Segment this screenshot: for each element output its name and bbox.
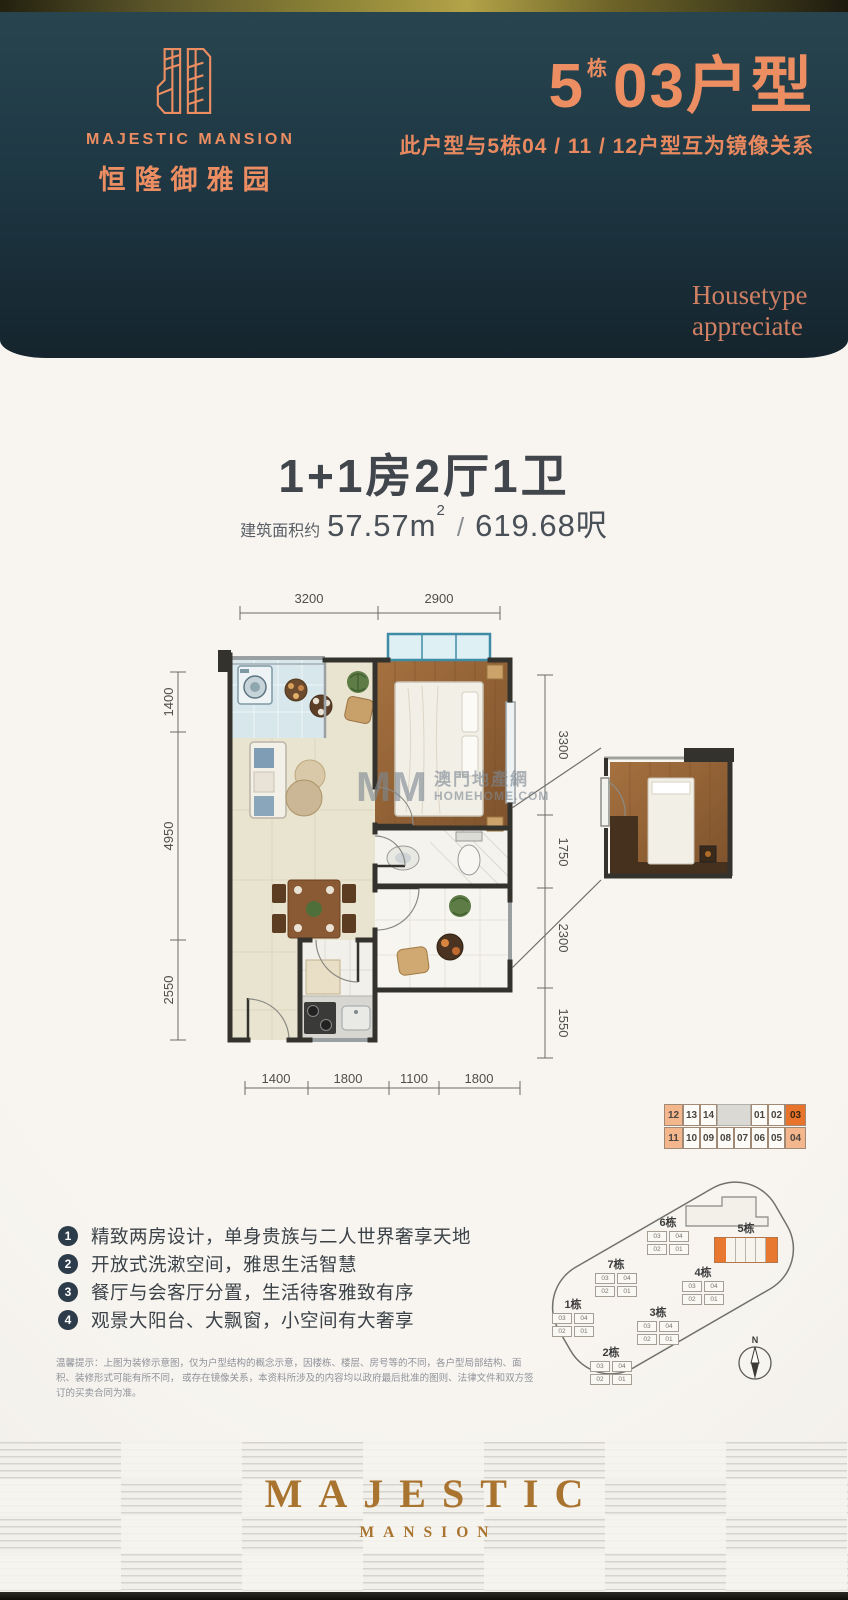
dim-label: 1800 bbox=[465, 1071, 494, 1086]
unit-cell-05: 05 bbox=[768, 1127, 785, 1149]
dim-label: 1400 bbox=[161, 688, 176, 717]
feature-text: 餐厅与会客厅分置，生活待客雅致有序 bbox=[91, 1279, 414, 1305]
building-cell: 02 bbox=[590, 1374, 610, 1385]
feature-number-badge: 3 bbox=[58, 1282, 78, 1302]
building-5-wing bbox=[715, 1238, 726, 1262]
unit-cell-08: 08 bbox=[717, 1127, 734, 1149]
feature-item: 3 餐厅与会客厅分置，生活待客雅致有序 bbox=[58, 1282, 538, 1302]
pouf-large bbox=[286, 780, 322, 816]
siteplan-building-1: 1栋 03 04 02 01 bbox=[550, 1296, 596, 1337]
building-cell: 02 bbox=[647, 1244, 667, 1255]
siteplan-building-7: 7栋 03 04 02 01 bbox=[593, 1256, 639, 1297]
building-cell: 03 bbox=[595, 1273, 615, 1284]
building-cell: 04 bbox=[659, 1321, 679, 1332]
feature-item: 2 开放式洗漱空间，雅思生活智慧 bbox=[58, 1254, 538, 1274]
dim-top: 3200 2900 bbox=[240, 591, 500, 620]
unit-cell-01: 01 bbox=[751, 1104, 768, 1126]
feature-number-badge: 1 bbox=[58, 1226, 78, 1246]
dim-label: 1800 bbox=[334, 1071, 363, 1086]
dim-label: 2300 bbox=[556, 924, 571, 953]
sofa bbox=[250, 742, 286, 818]
feature-item: 1 精致两房设计，单身贵族与二人世界奢享天地 bbox=[58, 1226, 538, 1246]
tagline-line2: appreciate bbox=[692, 311, 807, 342]
photo-edge-top bbox=[0, 0, 848, 12]
siteplan: N 6栋 03 04 02 01 5栋 7栋 03 04 02 01 bbox=[518, 1158, 848, 1408]
area-value-m2: 57.57m2 bbox=[327, 508, 446, 544]
building-cell: 02 bbox=[552, 1326, 572, 1337]
building-cell: 03 bbox=[590, 1361, 610, 1372]
feature-number-badge: 2 bbox=[58, 1254, 78, 1274]
dim-label: 1100 bbox=[400, 1071, 428, 1086]
feature-text: 精致两房设计，单身贵族与二人世界奢享天地 bbox=[91, 1223, 471, 1249]
siteplan-building-4: 4栋 03 04 02 01 bbox=[680, 1264, 726, 1305]
unit-cell-02: 02 bbox=[768, 1104, 785, 1126]
building-cell: 03 bbox=[637, 1321, 657, 1332]
tagline-line1: Housetype bbox=[692, 280, 807, 311]
balcony-table bbox=[285, 679, 307, 701]
dining-chair bbox=[272, 884, 286, 903]
footer-brand-sub: MANSION bbox=[0, 1524, 848, 1542]
feature-text: 开放式洗漱空间，雅思生活智慧 bbox=[91, 1251, 357, 1277]
building-cell: 04 bbox=[574, 1313, 594, 1324]
compass-label: N bbox=[752, 1335, 759, 1345]
feature-text: 观景大阳台、大飘窗，小空间有大奢享 bbox=[91, 1307, 414, 1333]
unit-cell-13: 13 bbox=[683, 1104, 700, 1126]
unit-title: 5栋03户型 bbox=[399, 56, 814, 118]
dining-chair bbox=[342, 914, 356, 933]
building-5-wing bbox=[766, 1238, 777, 1262]
bay-window-top bbox=[388, 634, 490, 660]
bay-window-right bbox=[506, 702, 515, 803]
dim-left: 1400 4950 2550 bbox=[161, 672, 186, 1040]
floor-strip-bottom-row: 11 10 09 08 07 06 05 04 bbox=[664, 1127, 808, 1149]
unit-cell-10: 10 bbox=[683, 1127, 700, 1149]
terrace-table bbox=[437, 934, 463, 960]
logo-monogram-icon bbox=[153, 44, 215, 118]
building-cell: 03 bbox=[682, 1281, 702, 1292]
floor-strip-top-row: 12 13 14 01 02 03 bbox=[664, 1104, 808, 1126]
unit-block-number: 5 bbox=[549, 52, 585, 121]
dim-label: 1550 bbox=[556, 1009, 571, 1038]
plant-icon bbox=[347, 671, 369, 693]
dim-label: 2550 bbox=[161, 976, 176, 1005]
brochure-photo: MAJESTIC MANSION 恒隆御雅园 5栋03户型 此户型与5栋04 /… bbox=[0, 0, 848, 1600]
siteplan-building-2: 2栋 03 04 02 01 bbox=[588, 1344, 634, 1385]
unit-cell-11: 11 bbox=[664, 1127, 683, 1149]
tagline: Housetype appreciate bbox=[692, 280, 807, 343]
disclaimer: 温馨提示：上图为装修示意图，仅为户型结构的概念示意，因楼栋、楼层、房号等的不同，… bbox=[56, 1356, 536, 1402]
floor-locator-strip: 12 13 14 01 02 03 11 10 09 08 07 06 05 0… bbox=[664, 1104, 808, 1149]
unit-cell-09: 09 bbox=[700, 1127, 717, 1149]
dim-label: 4950 bbox=[161, 822, 176, 851]
area-value-ft: 619.68呎 bbox=[475, 500, 608, 545]
dining-chair bbox=[342, 884, 356, 903]
brand-name-en: MAJESTIC MANSION bbox=[86, 131, 282, 149]
building-cell: 02 bbox=[682, 1294, 702, 1305]
armchair bbox=[344, 696, 374, 725]
building-cell: 03 bbox=[552, 1313, 572, 1324]
building-cell: 04 bbox=[704, 1281, 724, 1292]
dim-bottom: 1400 1800 1100 1800 bbox=[245, 1071, 520, 1095]
toilet-tank bbox=[456, 832, 482, 841]
building-cell: 01 bbox=[617, 1286, 637, 1297]
unit-cell-14: 14 bbox=[700, 1104, 717, 1126]
compass: N bbox=[739, 1335, 771, 1379]
brand-logo: MAJESTIC MANSION 恒隆御雅园 bbox=[86, 44, 282, 197]
area-separator: / bbox=[457, 512, 464, 543]
footer-brand: MAJESTIC MANSION bbox=[0, 1470, 848, 1542]
unit-block-suffix: 栋 bbox=[587, 59, 609, 79]
building-cell: 02 bbox=[637, 1334, 657, 1345]
toilet bbox=[458, 845, 480, 875]
terrace-chair bbox=[396, 946, 429, 976]
building-cell: 01 bbox=[704, 1294, 724, 1305]
siteplan-building-5-highlighted: 5栋 bbox=[714, 1220, 778, 1263]
header-banner: MAJESTIC MANSION 恒隆御雅园 5栋03户型 此户型与5栋04 /… bbox=[0, 12, 848, 358]
feature-list: 1 精致两房设计，单身贵族与二人世界奢享天地 2 开放式洗漱空间，雅思生活智慧 … bbox=[58, 1226, 538, 1338]
unit-cell-07: 07 bbox=[734, 1127, 751, 1149]
dim-label: 3200 bbox=[295, 591, 324, 606]
dining-chair bbox=[272, 914, 286, 933]
building-5-core bbox=[726, 1238, 766, 1262]
unit-cell-04: 04 bbox=[785, 1127, 806, 1149]
dim-label: 1750 bbox=[556, 838, 571, 867]
dim-label: 3300 bbox=[556, 731, 571, 760]
brand-name-cn: 恒隆御雅园 bbox=[86, 158, 282, 197]
area-line: 建筑面积约 57.57m2 / 619.68呎 bbox=[0, 500, 848, 545]
washing-machine bbox=[238, 666, 272, 704]
unit-cell-03-highlighted: 03 bbox=[785, 1104, 806, 1126]
dim-right: 3300 1750 2300 1550 bbox=[537, 675, 571, 1058]
layout-title: 1+1房2厅1卫 bbox=[0, 440, 848, 506]
unit-type-name: 03户型 bbox=[613, 52, 814, 121]
dim-label: 1400 bbox=[262, 1071, 291, 1086]
unit-cell-06: 06 bbox=[751, 1127, 768, 1149]
unit-cell-12: 12 bbox=[664, 1104, 683, 1126]
footer-brand-name: MAJESTIC bbox=[0, 1470, 848, 1517]
feature-item: 4 观景大阳台、大飘窗，小空间有大奢享 bbox=[58, 1310, 538, 1330]
building-cell: 04 bbox=[612, 1361, 632, 1372]
building-cell: 04 bbox=[669, 1231, 689, 1242]
feature-number-badge: 4 bbox=[58, 1310, 78, 1330]
detail-window bbox=[601, 778, 609, 826]
nightstand bbox=[487, 665, 503, 679]
floorplan: 3200 2900 1400 4950 2550 3300 1750 2300 … bbox=[160, 570, 760, 1110]
building-cell: 01 bbox=[669, 1244, 689, 1255]
building-cell: 01 bbox=[612, 1374, 632, 1385]
dim-label: 2900 bbox=[425, 591, 454, 606]
building-cell: 04 bbox=[617, 1273, 637, 1284]
area-prefix: 建筑面积约 bbox=[240, 517, 320, 541]
photo-edge-bottom bbox=[0, 1592, 848, 1600]
tea-table bbox=[310, 695, 332, 717]
mirror-note: 此户型与5栋04 / 11 / 12户型互为镜像关系 bbox=[399, 130, 814, 160]
building-cell: 01 bbox=[659, 1334, 679, 1345]
unit-title-block: 5栋03户型 此户型与5栋04 / 11 / 12户型互为镜像关系 bbox=[399, 56, 814, 160]
area-superscript: 2 bbox=[437, 502, 446, 519]
siteplan-building-3: 3栋 03 04 02 01 bbox=[635, 1304, 681, 1345]
core-block bbox=[717, 1104, 751, 1126]
building-cell: 02 bbox=[595, 1286, 615, 1297]
siteplan-building-6: 6栋 03 04 02 01 bbox=[645, 1214, 691, 1255]
sink bbox=[342, 1006, 370, 1030]
floorplan-svg: 3200 2900 1400 4950 2550 3300 1750 2300 … bbox=[160, 570, 760, 1110]
building-cell: 01 bbox=[574, 1326, 594, 1337]
building-cell: 03 bbox=[647, 1231, 667, 1242]
